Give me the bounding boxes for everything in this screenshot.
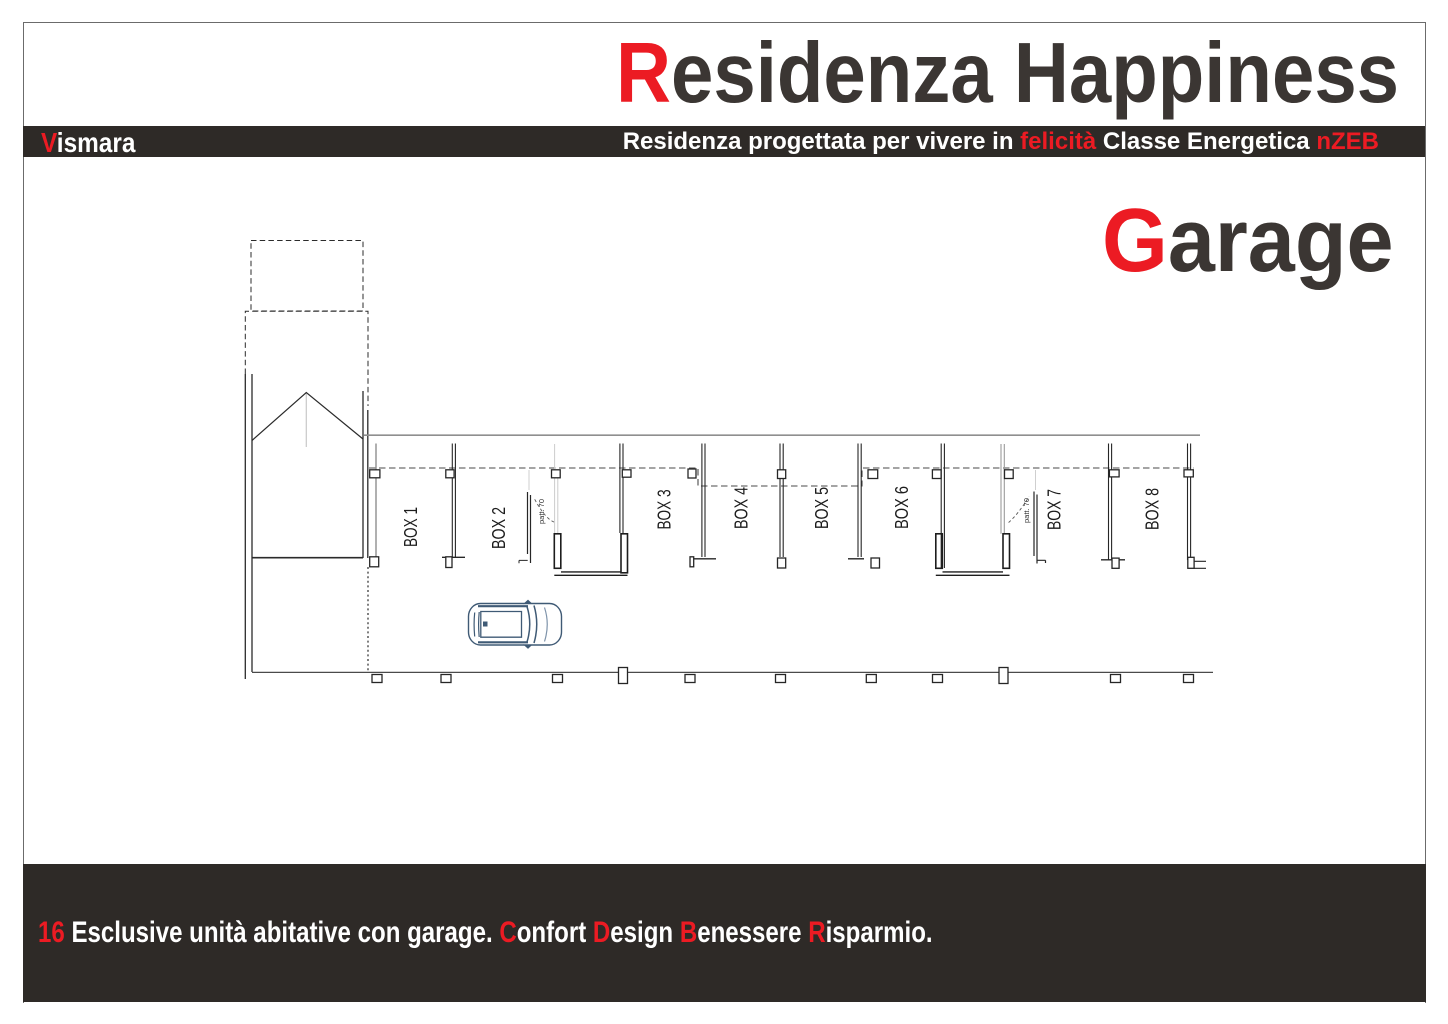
svg-text:BOX 1: BOX 1 — [400, 507, 421, 547]
svg-text:BOX 4: BOX 4 — [731, 487, 752, 529]
svg-text:BOX 7: BOX 7 — [1044, 489, 1065, 530]
svg-text:BOX 5: BOX 5 — [811, 487, 832, 529]
svg-text:BOX 2: BOX 2 — [488, 507, 509, 549]
svg-text:patt. 70: patt. 70 — [537, 499, 546, 524]
svg-text:BOX 3: BOX 3 — [654, 490, 675, 530]
svg-text:BOX 6: BOX 6 — [891, 486, 912, 529]
svg-text:BOX 8: BOX 8 — [1142, 488, 1163, 530]
svg-text:patt. 70: patt. 70 — [1022, 498, 1031, 523]
